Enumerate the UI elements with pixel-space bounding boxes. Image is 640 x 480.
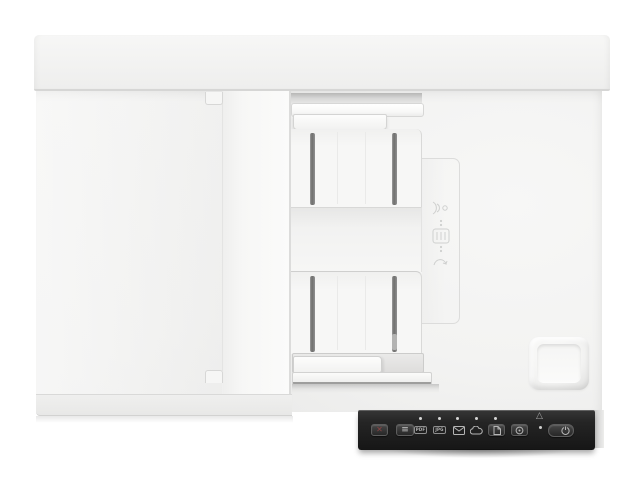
duplex-circle-icon bbox=[515, 426, 524, 435]
panel-ground-shadow bbox=[356, 449, 604, 461]
output-tray-edge bbox=[292, 372, 432, 384]
guide-rail-slider bbox=[392, 334, 397, 350]
paper-stop-pad-inner bbox=[537, 344, 581, 383]
options-lines-icon: ≡ bbox=[401, 426, 409, 435]
control-panel: ✕ ≡ PDF JPG bbox=[358, 410, 595, 450]
guide-rail-slot bbox=[392, 133, 397, 205]
document-icon bbox=[493, 426, 501, 435]
scan-file-button bbox=[488, 424, 505, 436]
envelope-icon bbox=[453, 426, 465, 435]
scanner-rear-band bbox=[34, 35, 610, 91]
panel-seam bbox=[337, 276, 338, 350]
hinge-notch-top bbox=[205, 92, 223, 105]
email-led bbox=[456, 417, 459, 420]
cancel-button: ✕ bbox=[371, 424, 388, 436]
pdf-led bbox=[419, 417, 422, 420]
scanner-product-photo: ✕ ≡ PDF JPG bbox=[0, 0, 640, 480]
error-led bbox=[539, 426, 542, 429]
cancel-x-icon: ✕ bbox=[376, 426, 383, 434]
tray-mid-band bbox=[291, 207, 422, 272]
cloud-indicator bbox=[470, 425, 483, 435]
panel-side-shadow bbox=[595, 410, 604, 448]
error-triangle-icon: △ bbox=[536, 412, 543, 421]
cloud-led bbox=[475, 417, 478, 420]
scan-file-led bbox=[494, 417, 497, 420]
jpg-label: JPG bbox=[433, 426, 445, 434]
page-curve-icon bbox=[434, 260, 447, 265]
hinge-notch-bottom bbox=[205, 370, 223, 383]
tray-drop-shadow bbox=[292, 384, 439, 393]
flatbed-lid bbox=[36, 91, 222, 394]
email-indicator bbox=[452, 425, 465, 435]
lid-front-shadow bbox=[36, 416, 293, 423]
jpg-indicator: JPG bbox=[433, 425, 446, 435]
pdf-indicator: PDF bbox=[414, 425, 427, 435]
cloud-icon bbox=[470, 426, 483, 435]
ultrasonic-sensor-icon bbox=[433, 202, 436, 214]
guide-rail-slot bbox=[310, 133, 315, 205]
power-button bbox=[548, 424, 574, 437]
scan-options-button: ≡ bbox=[396, 424, 414, 436]
pdf-label: PDF bbox=[414, 426, 428, 434]
panel-seam bbox=[365, 132, 366, 204]
input-paper-guide bbox=[293, 114, 387, 130]
jpg-led bbox=[438, 417, 441, 420]
tray-slot-upper bbox=[291, 129, 422, 207]
panel-seam bbox=[365, 276, 366, 350]
power-icon bbox=[561, 426, 570, 435]
lid-hinge-bar bbox=[223, 91, 289, 394]
guide-rail-slot bbox=[310, 276, 315, 352]
duplex-button bbox=[511, 424, 528, 436]
tray-slot-lower bbox=[291, 271, 422, 354]
lid-front-edge bbox=[36, 394, 292, 416]
embossed-icon-column bbox=[428, 199, 456, 279]
panel-seam bbox=[337, 132, 338, 204]
